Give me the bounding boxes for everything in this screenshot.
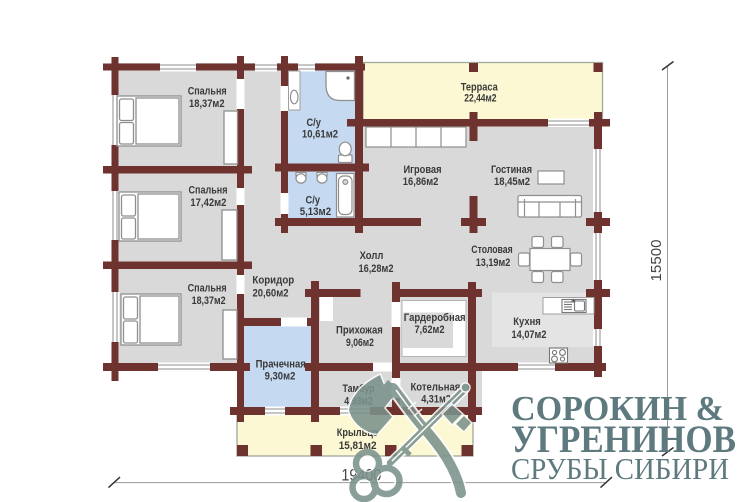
svg-text:15500: 15500 [648, 240, 665, 282]
svg-text:Спальня: Спальня [188, 283, 227, 295]
svg-text:9,06м2: 9,06м2 [346, 337, 374, 349]
svg-text:Гостиная: Гостиная [491, 164, 532, 176]
svg-text:Гардеробная: Гардеробная [404, 312, 466, 324]
svg-text:10,61м2: 10,61м2 [302, 129, 338, 141]
svg-text:14,07м2: 14,07м2 [512, 329, 547, 341]
svg-text:Котельная: Котельная [411, 382, 461, 394]
svg-text:С/у: С/у [306, 117, 321, 129]
svg-text:СРУБЫ СИБИРИ: СРУБЫ СИБИРИ [511, 451, 729, 486]
svg-text:18,37м2: 18,37м2 [192, 295, 226, 307]
svg-text:Прачечная: Прачечная [256, 359, 306, 371]
svg-text:Кухня: Кухня [513, 316, 541, 328]
svg-text:9,30м2: 9,30м2 [265, 371, 296, 383]
svg-text:17,42м2: 17,42м2 [190, 197, 226, 209]
svg-text:Игровая: Игровая [403, 164, 441, 176]
svg-text:Коридор: Коридор [252, 274, 294, 286]
svg-text:13,19м2: 13,19м2 [476, 257, 511, 269]
svg-text:Спальня: Спальня [188, 85, 227, 97]
svg-text:С/у: С/у [306, 195, 321, 207]
svg-text:Столовая: Столовая [471, 244, 512, 256]
svg-text:18,37м2: 18,37м2 [189, 98, 225, 110]
svg-text:Прихожая: Прихожая [336, 325, 383, 337]
svg-text:16,86м2: 16,86м2 [403, 176, 439, 188]
svg-text:16,28м2: 16,28м2 [359, 263, 394, 275]
svg-text:20,60м2: 20,60м2 [252, 288, 288, 300]
svg-text:Холл: Холл [360, 250, 384, 262]
svg-text:7,62м2: 7,62м2 [415, 324, 445, 336]
svg-text:22,44м2: 22,44м2 [464, 93, 496, 105]
svg-text:18,45м2: 18,45м2 [494, 176, 530, 188]
svg-text:Спальня: Спальня [189, 185, 228, 197]
svg-text:5,13м2: 5,13м2 [300, 206, 331, 218]
